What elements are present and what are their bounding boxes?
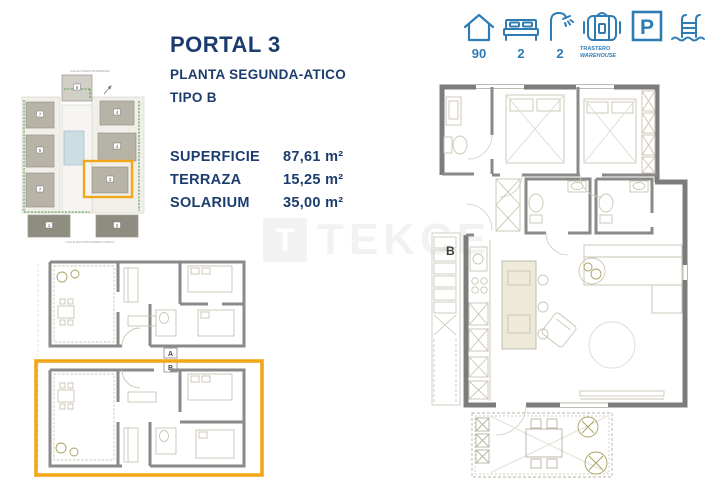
spec-label: SOLARIUM xyxy=(170,195,283,211)
type-subtitle: TIPO B xyxy=(170,90,346,105)
brochure-page: T TEKCE PORTAL 3 PLANTA SEGUNDA-ATICO TI… xyxy=(0,0,726,485)
parking-letter: P xyxy=(640,16,654,39)
north-arrow-icon xyxy=(104,86,111,94)
street-name-top: CALLE NUEVO RODRIGUEZ xyxy=(70,69,110,73)
parking-icon: P xyxy=(630,7,664,43)
amenity-pool xyxy=(670,7,710,43)
storage-suitcase-icon xyxy=(580,7,624,43)
block-number: 6 xyxy=(76,85,79,90)
block-number: 7 xyxy=(39,112,42,117)
block-number: 1 xyxy=(48,223,51,228)
block-number: 3 xyxy=(109,177,112,182)
amenity-bedrooms: 2 xyxy=(502,7,540,61)
bed-icon xyxy=(502,7,540,43)
amenity-surface: 90 xyxy=(462,7,496,61)
block-number: 7 xyxy=(39,187,42,192)
spec-value: 35,00 m² xyxy=(283,195,343,211)
shower-icon xyxy=(546,7,574,43)
floor-subtitle: PLANTA SEGUNDA-ATICO xyxy=(170,67,346,82)
plan-terrace xyxy=(472,413,612,477)
site-plan-drawing: CALLE NUEVO RODRIGUEZ xyxy=(20,45,160,245)
apartment-plan-drawing: B xyxy=(430,75,715,485)
block-number: 2 xyxy=(116,223,119,228)
building-plan-drawing: A B xyxy=(30,252,265,482)
site-pool xyxy=(64,131,84,165)
bedrooms-value: 2 xyxy=(517,46,524,61)
spec-value: 15,25 m² xyxy=(283,172,343,188)
warehouse-text: WAREHOUSE xyxy=(580,53,624,60)
plan-bedroom-furniture xyxy=(506,95,636,163)
spec-value: 87,61 m² xyxy=(283,149,343,165)
amenity-bathrooms: 2 xyxy=(546,7,574,61)
surface-value: 90 xyxy=(472,46,486,61)
area-specs: SUPERFICIE 87,61 m² TERRAZA 15,25 m² SOL… xyxy=(170,149,343,218)
building-floor-plan: A B xyxy=(30,252,265,482)
plan-stairwell xyxy=(432,233,460,405)
watermark-logo-icon: T xyxy=(263,218,307,262)
trastero-text: TRASTERO xyxy=(580,46,610,52)
plan-interior-walls xyxy=(442,87,657,235)
block-number: 4 xyxy=(116,110,119,115)
spec-row-solarium: SOLARIUM 35,00 m² xyxy=(170,195,343,211)
storage-label: TRASTERO WAREHOUSE xyxy=(580,46,624,60)
street-name-bottom: CALLE DOCTOR ARTERO GUIRAO xyxy=(65,240,115,244)
site-plan: CALLE NUEVO RODRIGUEZ xyxy=(20,45,160,245)
unit-a-label: A xyxy=(168,351,173,358)
spec-row-superficie: SUPERFICIE 87,61 m² xyxy=(170,149,343,165)
block-number: 5 xyxy=(39,148,42,153)
house-icon xyxy=(462,7,496,43)
spec-label: TERRAZA xyxy=(170,172,283,188)
amenity-storage: TRASTERO WAREHOUSE xyxy=(580,7,624,60)
unit-a-furniture xyxy=(54,266,234,346)
apartment-floor-plan: B xyxy=(430,75,715,485)
plan-closets xyxy=(496,91,655,231)
plan-living-room xyxy=(541,245,682,399)
main-unit-label: B xyxy=(446,244,455,258)
spec-row-terraza: TERRAZA 15,25 m² xyxy=(170,172,343,188)
plan-kitchen xyxy=(469,240,548,401)
spec-label: SUPERFICIE xyxy=(170,149,283,165)
title-block: PORTAL 3 PLANTA SEGUNDA-ATICO TIPO B xyxy=(170,32,346,105)
bathrooms-value: 2 xyxy=(556,46,563,61)
unit-b-furniture xyxy=(54,370,234,462)
portal-title: PORTAL 3 xyxy=(170,32,346,58)
unit-b-walls xyxy=(50,370,244,466)
pool-ladder-icon xyxy=(670,7,710,43)
amenities-bar: 90 2 2 xyxy=(462,7,716,61)
amenity-parking: P xyxy=(630,7,664,43)
block-number: 4 xyxy=(116,144,119,149)
